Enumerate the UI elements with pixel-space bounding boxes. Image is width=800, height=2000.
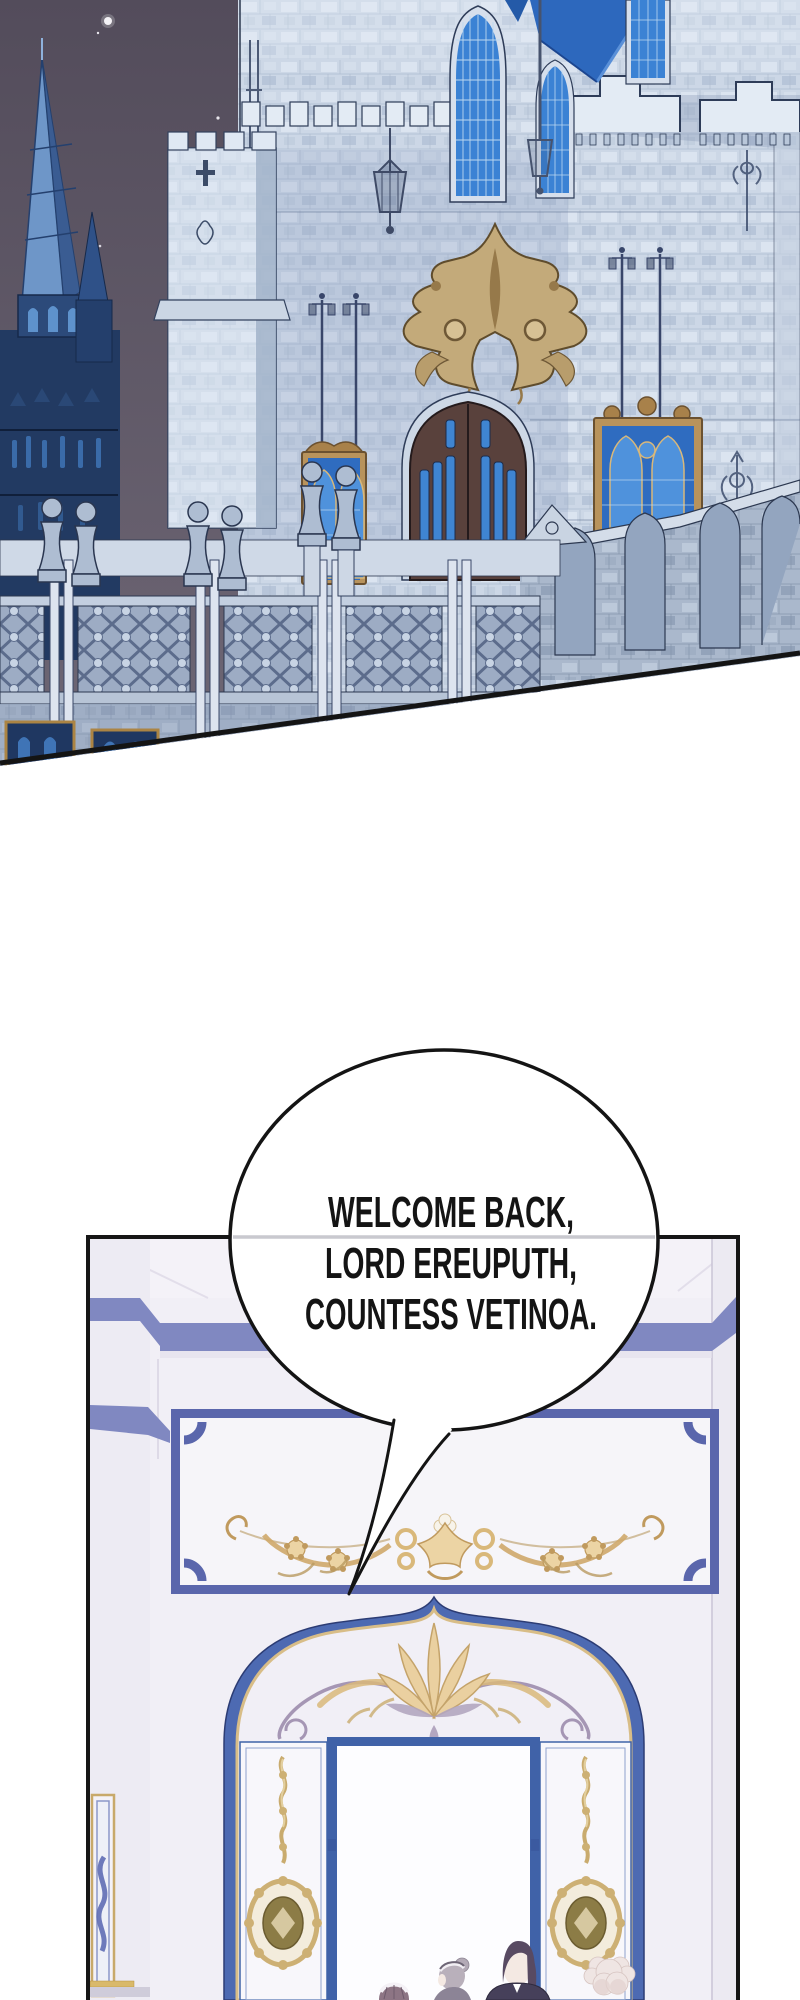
interior-panel bbox=[86, 1235, 740, 2000]
grand-archway bbox=[224, 1597, 644, 2000]
castle-illustration bbox=[0, 0, 800, 770]
battlement-tower bbox=[154, 132, 290, 528]
door-leaf-left bbox=[240, 1742, 327, 2000]
ornament-plaque bbox=[176, 1414, 715, 1590]
interior-illustration bbox=[90, 1239, 736, 2000]
corbel-row bbox=[562, 134, 790, 145]
stained-glass-window-top bbox=[626, 0, 670, 84]
bubble-text-line-1: WELCOME BACK, bbox=[328, 1188, 574, 1237]
right-side-wall bbox=[712, 1239, 736, 2000]
webtoon-page: WELCOME BACK, LORD EREUPUTH, COUNTESS VE… bbox=[0, 0, 800, 2000]
maid-mauve bbox=[379, 1984, 409, 2000]
castle-panel bbox=[0, 0, 800, 770]
stained-glass-window-tall bbox=[450, 6, 506, 202]
stained-glass-window-mid bbox=[536, 60, 574, 198]
